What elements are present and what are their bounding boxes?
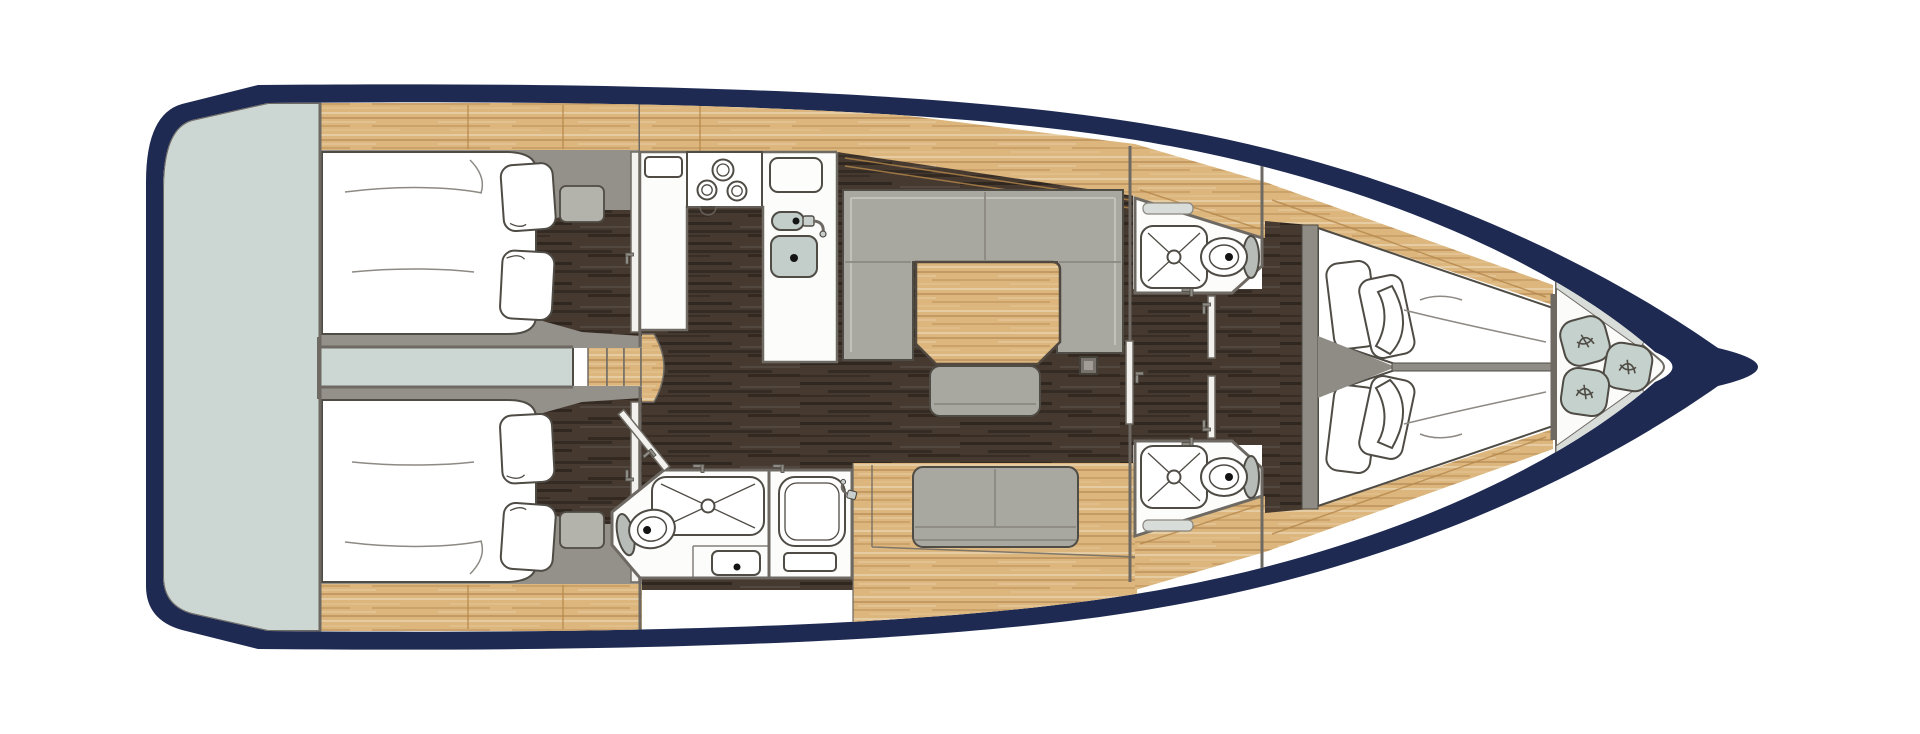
cushion <box>1559 366 1611 418</box>
stove-3-burner <box>687 152 762 207</box>
aft-cabin-port <box>320 386 642 631</box>
mast-post <box>1080 357 1097 374</box>
berth-divider <box>1392 363 1553 371</box>
aft-cabin-starboard <box>320 103 642 348</box>
shower-cabin <box>779 477 845 571</box>
saloon-door <box>1126 341 1133 424</box>
forward-cabin-floor <box>1262 215 1304 519</box>
icebox-lid <box>770 158 822 192</box>
bench-seat <box>930 366 1040 416</box>
yacht-floor-plan <box>0 0 1920 734</box>
yacht-floor-plan-page <box>0 0 1920 734</box>
swim-platform <box>163 103 320 631</box>
dining-table <box>916 262 1060 364</box>
washbasin <box>712 551 760 575</box>
headboard-pads <box>1302 225 1318 509</box>
worktop-locker <box>645 157 682 177</box>
